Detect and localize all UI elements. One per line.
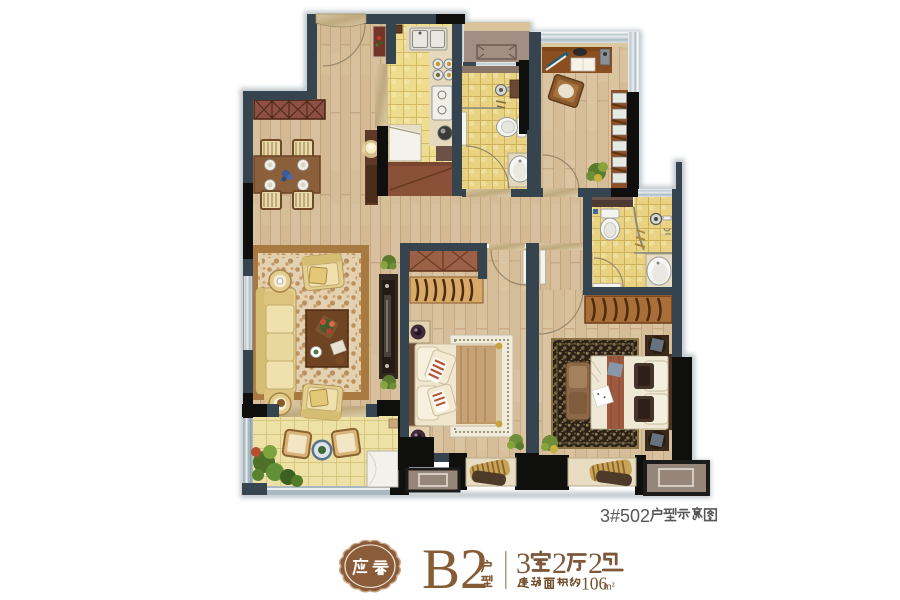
svg-text:3: 3 [516, 547, 531, 580]
svg-text:3#502: 3#502 [600, 506, 650, 526]
svg-text:B2: B2 [422, 538, 489, 600]
svg-text:2: 2 [552, 547, 567, 580]
svg-text:m²: m² [604, 582, 615, 593]
